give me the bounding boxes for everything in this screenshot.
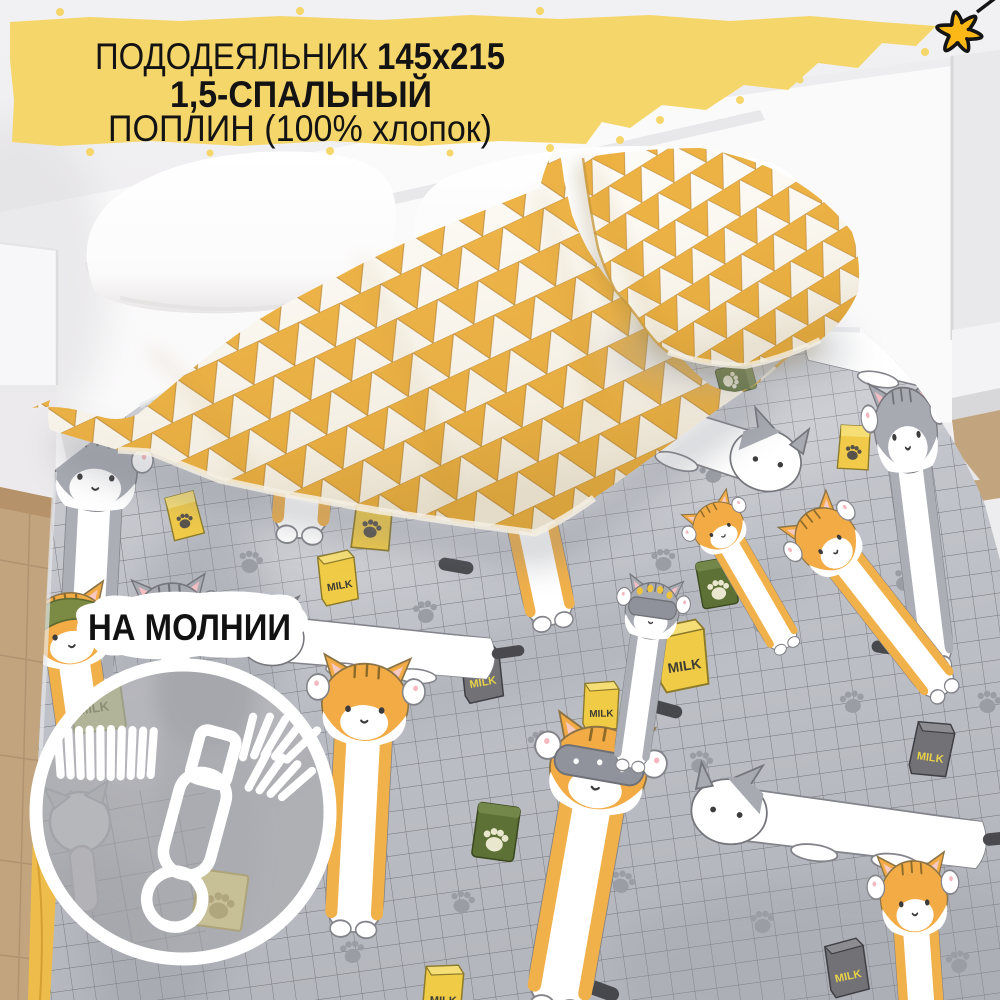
svg-text:ПОДОДЕЯЛЬНИК 145х215: ПОДОДЕЯЛЬНИК 145х215 (95, 36, 505, 77)
svg-text:ПОПЛИН (100% хлопок): ПОПЛИН (100% хлопок) (108, 108, 492, 149)
svg-text:НА МОЛНИИ: НА МОЛНИИ (88, 607, 291, 648)
